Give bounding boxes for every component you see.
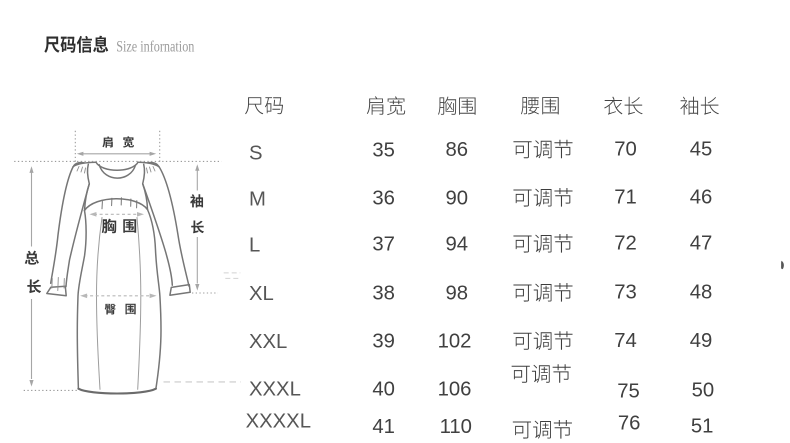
svg-text:37: 37 xyxy=(372,234,395,256)
svg-text:72: 72 xyxy=(614,233,637,255)
svg-text:38: 38 xyxy=(372,283,395,305)
svg-text:50: 50 xyxy=(692,380,715,402)
svg-text:90: 90 xyxy=(446,188,469,210)
svg-text:71: 71 xyxy=(614,187,637,209)
svg-text:110: 110 xyxy=(440,416,472,438)
svg-text:86: 86 xyxy=(446,139,469,161)
svg-text:102: 102 xyxy=(438,331,472,353)
svg-text:XL: XL xyxy=(249,283,274,305)
svg-text:74: 74 xyxy=(614,330,637,352)
svg-text:41: 41 xyxy=(372,416,395,438)
svg-text:46: 46 xyxy=(690,187,713,209)
svg-text:98: 98 xyxy=(446,283,469,305)
svg-text:70: 70 xyxy=(614,138,637,160)
svg-text:47: 47 xyxy=(690,233,713,255)
svg-text:39: 39 xyxy=(372,331,395,353)
svg-text:L: L xyxy=(249,234,260,256)
svg-text:40: 40 xyxy=(372,378,395,400)
svg-text:35: 35 xyxy=(372,140,395,162)
svg-text:36: 36 xyxy=(372,188,395,210)
svg-text:94: 94 xyxy=(446,234,469,256)
svg-text:51: 51 xyxy=(691,416,714,438)
svg-text:S: S xyxy=(249,142,263,164)
svg-text:106: 106 xyxy=(438,378,472,400)
svg-text:XXXXL: XXXXL xyxy=(246,411,311,433)
svg-text:M: M xyxy=(249,188,266,210)
svg-text:49: 49 xyxy=(690,330,713,352)
svg-text:45: 45 xyxy=(690,139,713,161)
svg-text:Size infornation: Size infornation xyxy=(116,39,194,56)
svg-text:48: 48 xyxy=(690,282,713,304)
svg-text:75: 75 xyxy=(617,381,640,403)
svg-text:XXXL: XXXL xyxy=(249,379,301,401)
svg-text:XXL: XXL xyxy=(249,331,287,353)
svg-text:76: 76 xyxy=(618,413,641,435)
svg-text:73: 73 xyxy=(614,282,637,304)
